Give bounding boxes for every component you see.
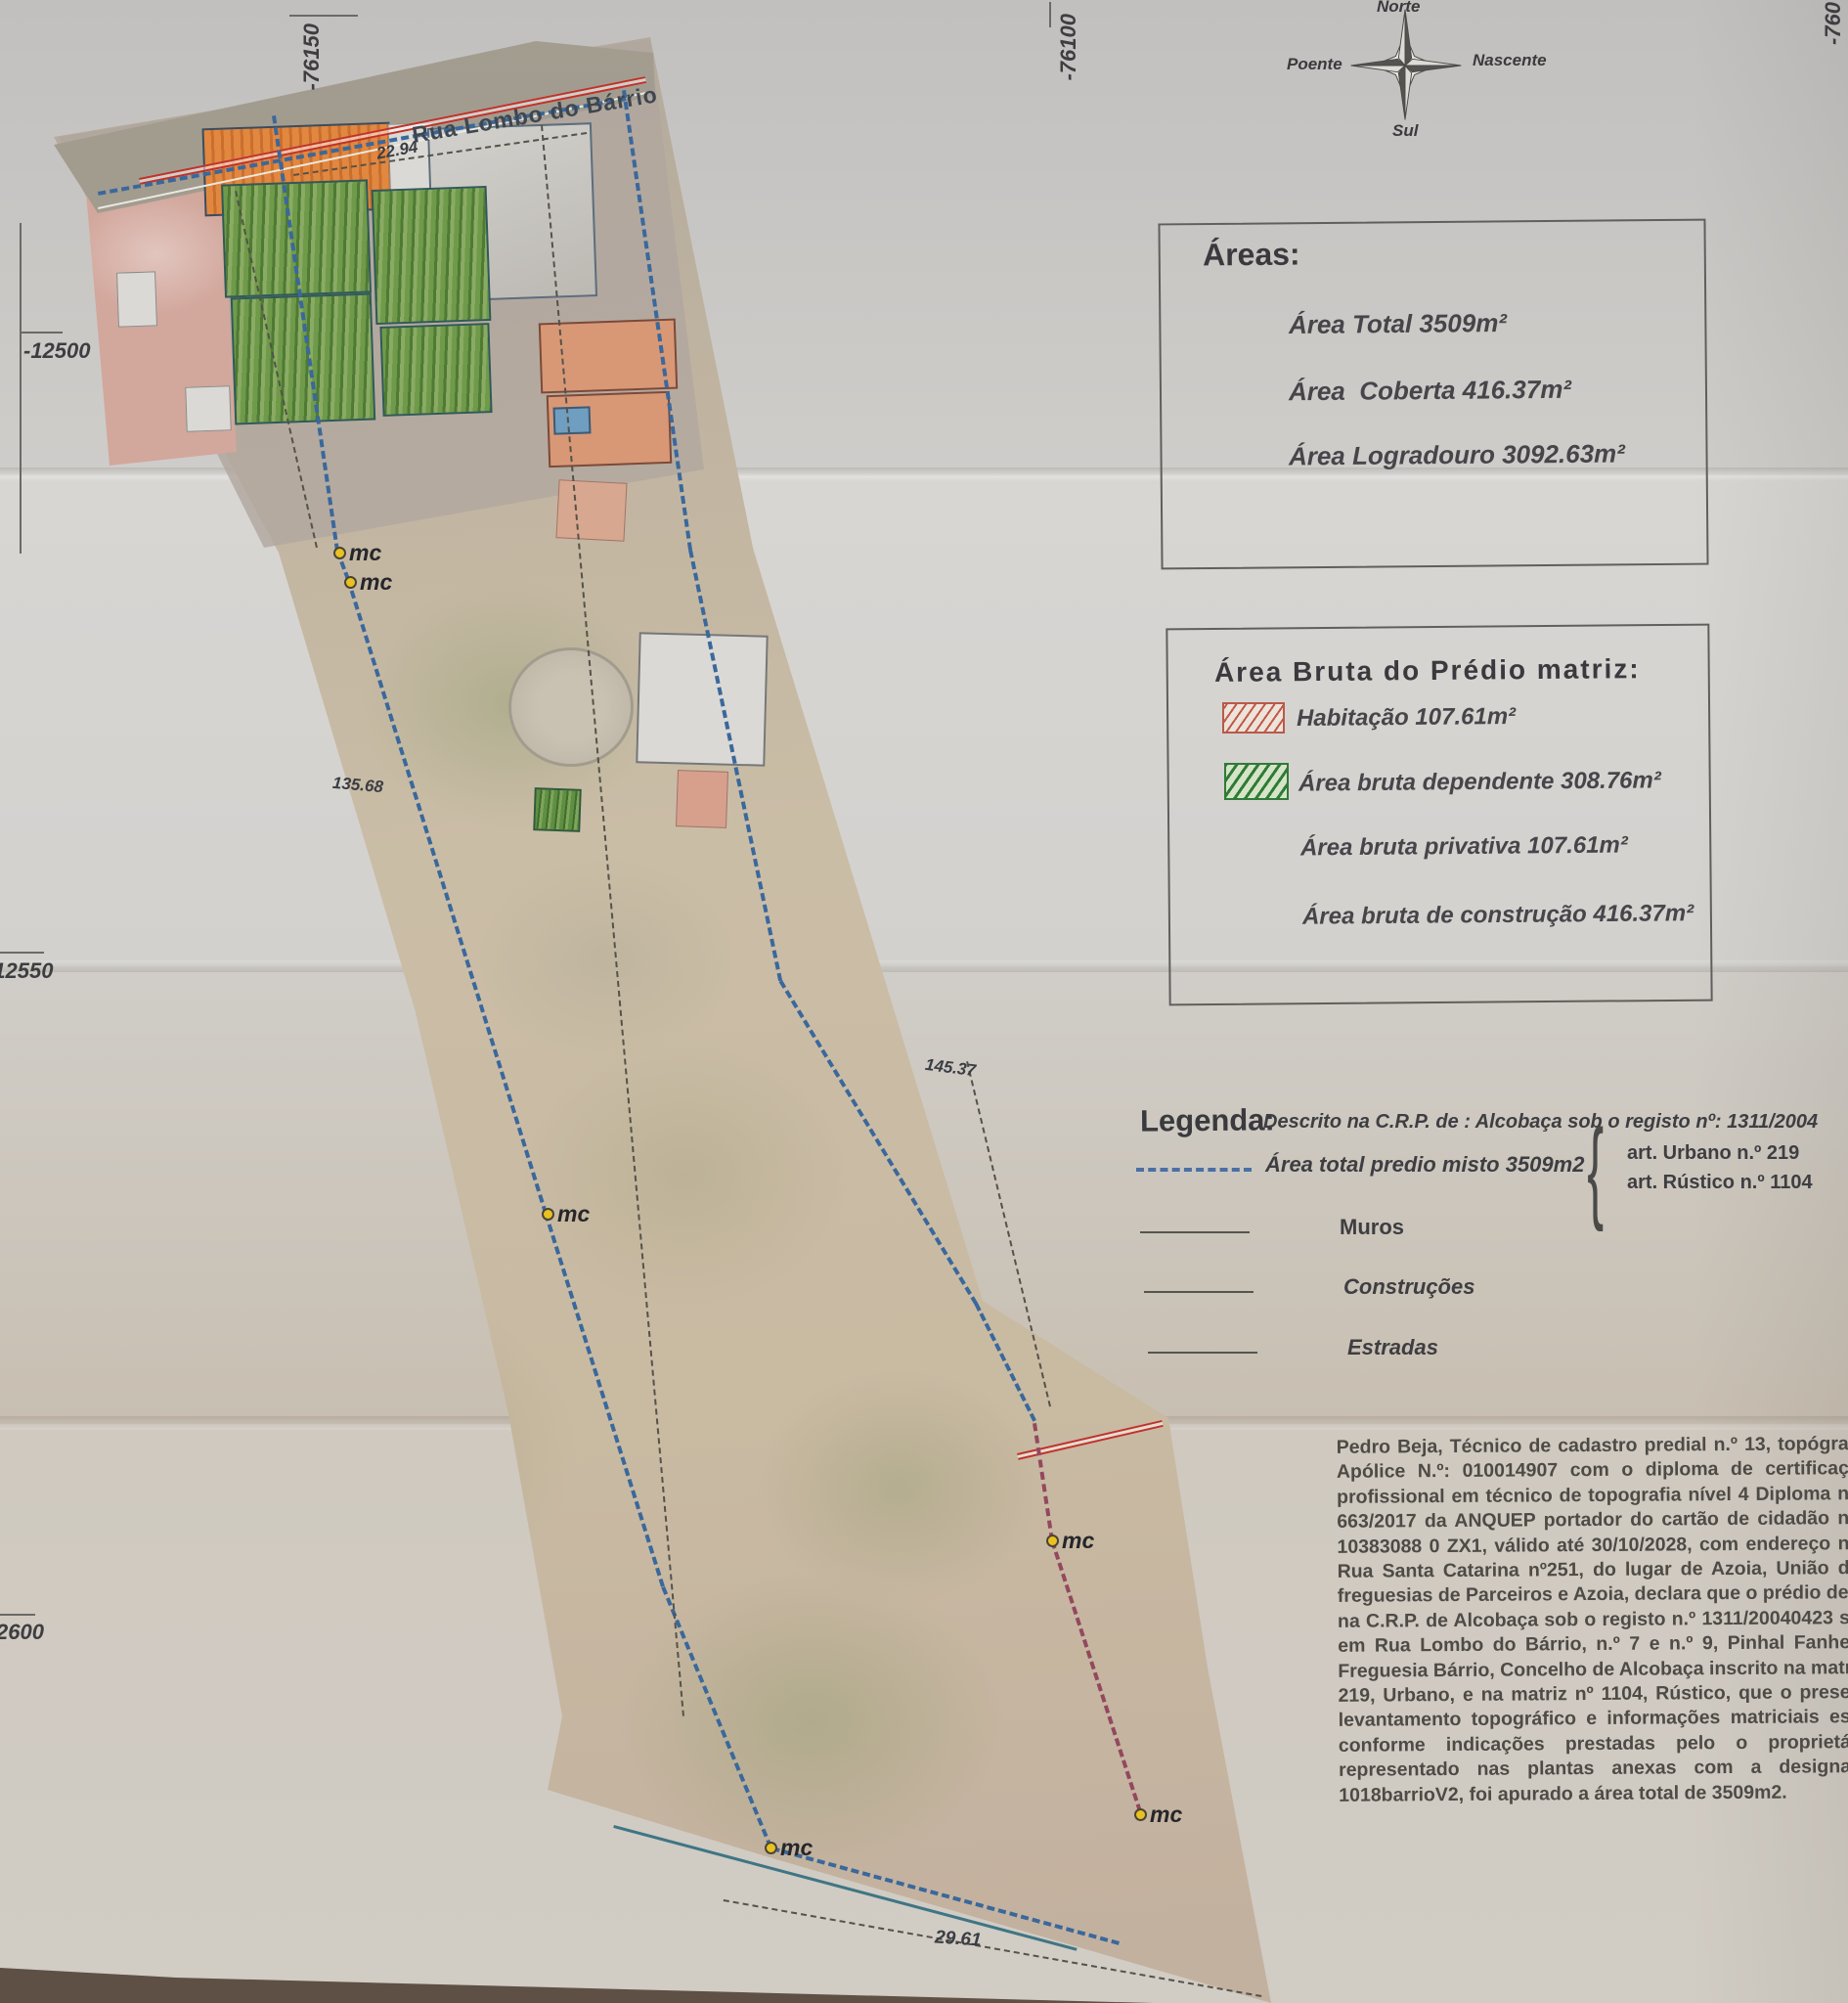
small-outbuilding (116, 271, 157, 327)
circular-ground-feature (508, 647, 634, 767)
marker-dot-icon (542, 1208, 554, 1221)
statement-line: Rua Santa Catarina nº251, do lugar de Az… (1338, 1556, 1848, 1584)
legend-construcoes-line (1144, 1291, 1254, 1293)
blue-pool (553, 406, 592, 434)
technician-statement: Pedro Beja, Técnico de cadastro predial … (1337, 1432, 1848, 1808)
coordinate-label: -760 (1821, 2, 1846, 45)
statement-line: 219, Urbano, e na matriz nº 1104, Rústic… (1338, 1680, 1848, 1709)
boundary-marker: mc (542, 1201, 590, 1227)
area-total-value: Área Total 3509m² (1289, 308, 1507, 340)
statement-line: 1018barrioV2, foi apurado a área total d… (1339, 1780, 1848, 1808)
habitacao-hatch-swatch (1222, 702, 1285, 734)
boundary-marker: mc (1046, 1528, 1094, 1554)
legend-muros-label: Muros (1340, 1215, 1404, 1240)
small-outbuilding (185, 385, 232, 432)
marker-dot-icon (1134, 1808, 1147, 1821)
salmon-patch (555, 479, 627, 542)
vineyard-field (372, 186, 492, 325)
legend-estradas-label: Estradas (1347, 1335, 1438, 1360)
coordinate-label: -76150 (299, 23, 325, 91)
statement-line: Pedro Beja, Técnico de cadastro predial … (1337, 1432, 1848, 1460)
grid-tick (1049, 2, 1051, 27)
privativa-value: Área bruta privativa 107.61m² (1300, 832, 1628, 863)
photographed-survey-plan: { "coords": { "top_left": "-76150", "top… (0, 0, 1848, 2003)
white-building-mid (636, 632, 768, 766)
statement-line: na C.R.P. de Alcobaça sob o registo n.º … (1338, 1606, 1848, 1634)
small-vineyard-patch (533, 787, 582, 832)
compass-east-label: Nascente (1473, 51, 1547, 70)
coordinate-label: 2600 (0, 1620, 44, 1645)
statement-line: levantamento topográfico e informações m… (1339, 1706, 1848, 1734)
grid-tick (289, 15, 358, 17)
dependente-value: Área bruta dependente 308.76m² (1298, 767, 1661, 797)
coordinate-label: -12500 (23, 338, 91, 364)
marker-dot-icon (344, 576, 357, 589)
statement-line: Freguesia Bárrio, Concelho de Alcobaça i… (1338, 1656, 1848, 1684)
coordinate-label: -12550 (0, 958, 54, 984)
statement-line: conforme indicações prestadas pelo o pro… (1339, 1730, 1848, 1758)
legend-dashed-blue-line (1136, 1168, 1252, 1172)
legend-estradas-line (1148, 1352, 1257, 1354)
statement-line: 663/2017 da ANQUEP portador do cartão de… (1337, 1506, 1848, 1535)
legend-construcoes-label: Construções (1343, 1274, 1474, 1300)
compass-west-label: Poente (1287, 55, 1342, 74)
area-bruta-title: Área Bruta do Prédio matriz: (1214, 653, 1641, 689)
legend-descrito-text: Descrito na C.R.P. de : Alcobaça sob o r… (1263, 1111, 1818, 1134)
statement-line: freguesias de Parceiros e Azoia, declara… (1338, 1581, 1848, 1610)
dependente-hatch-swatch (1224, 763, 1289, 800)
boundary-marker: mc (765, 1835, 813, 1861)
coordinate-label: -76100 (1056, 14, 1081, 81)
boundary-marker: mc (344, 569, 392, 596)
legend-muros-line (1140, 1231, 1250, 1233)
compass-rose (1340, 4, 1471, 127)
brace-glyph: { (1587, 1103, 1604, 1235)
areas-box-title: Áreas: (1203, 237, 1300, 274)
statement-line: Apólice N.º: 010014907 com o diploma de … (1337, 1457, 1848, 1486)
statement-line: em Rua Lombo do Bárrio, n.º 7 e n.º 9, P… (1338, 1630, 1848, 1659)
marker-dot-icon (333, 547, 346, 559)
grid-line (20, 223, 22, 554)
dimension-label: 29.61 (934, 1927, 982, 1951)
statement-line: representado nas plantas anexas com a de… (1339, 1755, 1848, 1783)
habitacao-value: Habitação 107.61m² (1297, 703, 1516, 733)
area-coberta-value: Área Coberta 416.37m² (1289, 375, 1571, 408)
statement-line: 10383088 0 ZX1, válido até 30/10/2028, c… (1337, 1532, 1848, 1560)
salmon-patch (676, 770, 728, 828)
marker-dot-icon (765, 1842, 777, 1854)
vineyard-field (379, 323, 492, 417)
area-logradouro-value: Área Logradouro 3092.63m² (1289, 439, 1625, 472)
construcao-value: Área bruta de construção 416.37m² (1302, 900, 1694, 930)
grid-tick (20, 332, 63, 334)
statement-line: profissional em técnico de topografia ní… (1337, 1482, 1848, 1510)
grid-tick (0, 952, 44, 954)
legend-area-total-label: Área total predio misto 3509m2 (1265, 1152, 1584, 1178)
marker-dot-icon (1046, 1535, 1059, 1547)
boundary-marker: mc (333, 540, 381, 566)
boundary-marker: mc (1134, 1802, 1182, 1828)
compass-north-label: Norte (1377, 0, 1420, 17)
legend-title: Legenda: (1140, 1102, 1275, 1138)
legend-art-urbano: art. Urbano n.º 219 (1627, 1142, 1799, 1165)
grid-tick (0, 1614, 35, 1616)
legend-art-rustico: art. Rústico n.º 1104 (1627, 1172, 1813, 1194)
compass-south-label: Sul (1392, 121, 1418, 141)
